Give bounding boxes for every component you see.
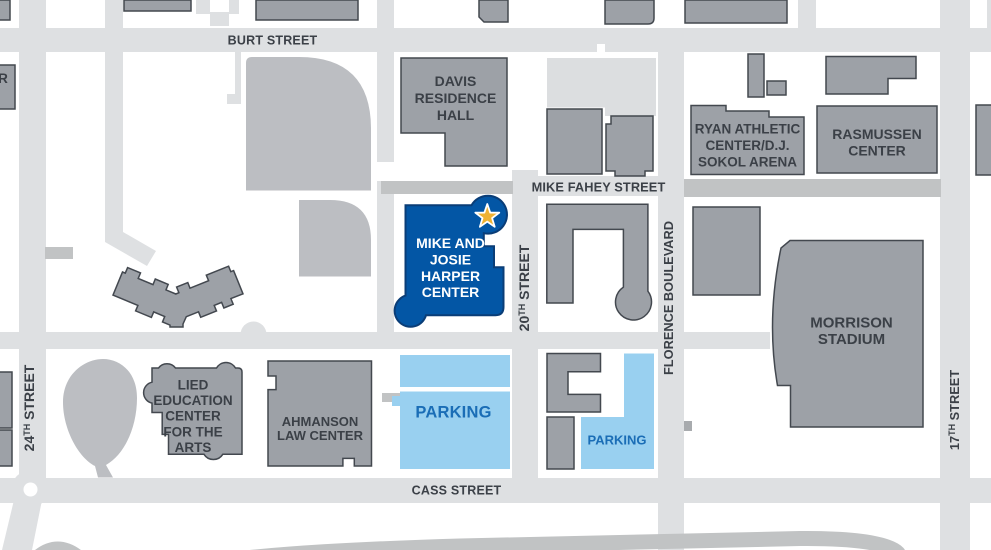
- svg-text:PARKING: PARKING: [415, 404, 491, 422]
- svg-text:FLORENCE BOULEVARD: FLORENCE BOULEVARD: [661, 221, 676, 375]
- svg-text:CASS STREET: CASS STREET: [412, 484, 502, 498]
- svg-text:BURT STREET: BURT STREET: [228, 34, 318, 48]
- svg-text:R: R: [0, 71, 8, 86]
- svg-text:17TH STREET: 17TH STREET: [947, 370, 962, 450]
- svg-text:20TH STREET: 20TH STREET: [516, 244, 532, 331]
- svg-text:AHMANSONLAW CENTER: AHMANSONLAW CENTER: [277, 414, 364, 443]
- svg-text:24TH STREET: 24TH STREET: [21, 364, 37, 451]
- svg-text:MIKE ANDJOSIEHARPERCENTER: MIKE ANDJOSIEHARPERCENTER: [416, 235, 485, 300]
- svg-text:PARKING: PARKING: [588, 433, 647, 448]
- svg-text:MIKE FAHEY STREET: MIKE FAHEY STREET: [532, 180, 666, 195]
- svg-text:RYAN ATHLETICCENTER/D.J.SOKOL: RYAN ATHLETICCENTER/D.J.SOKOL ARENA: [695, 122, 801, 170]
- svg-text:MORRISONSTADIUM: MORRISONSTADIUM: [810, 315, 893, 349]
